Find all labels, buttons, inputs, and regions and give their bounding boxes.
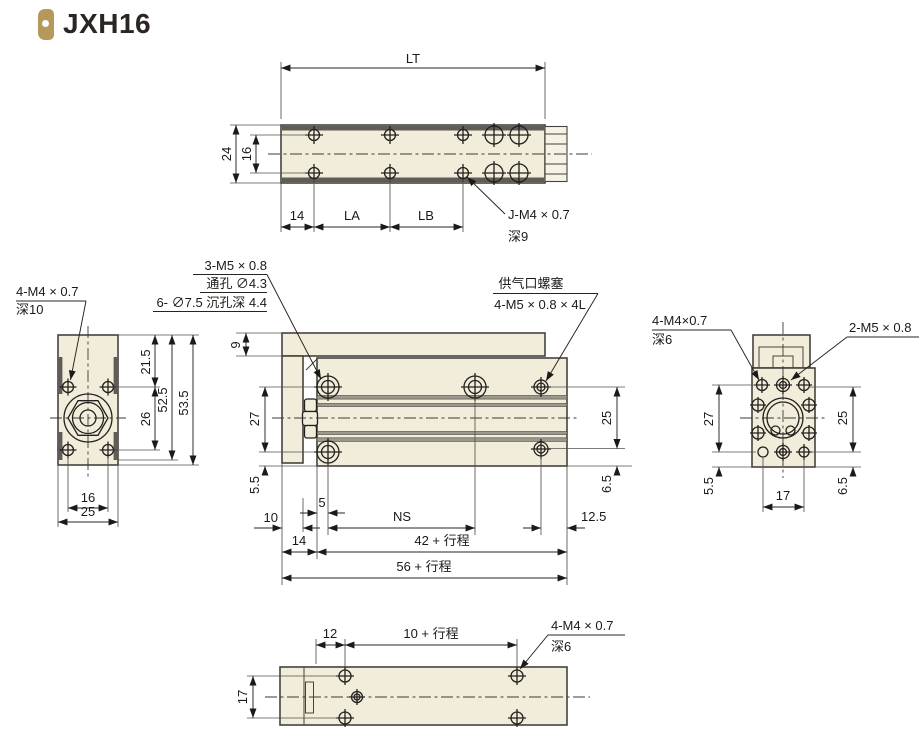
dim-17r: 17 bbox=[776, 488, 790, 503]
dim-26: 26 bbox=[138, 412, 153, 426]
dim-27r: 27 bbox=[701, 412, 716, 426]
dim-16: 16 bbox=[239, 147, 254, 161]
dim-24: 24 bbox=[219, 147, 234, 161]
right-side-view: 4-M4×0.7 深6 2-M5 × 0.8 27 5.5 25 6.5 17 bbox=[652, 313, 919, 512]
left-side-view: 4-M4 × 0.7 深10 21.5 26 52.5 53.5 16 25 bbox=[16, 284, 199, 527]
dim-6-5: 6.5 bbox=[599, 475, 614, 493]
note-4m4-depth: 深10 bbox=[16, 302, 43, 317]
note-port-plug: 供气口螺塞 bbox=[498, 276, 563, 291]
technical-drawing-canvas: LT 24 16 14 LA LB J-M4 × 0.7 深9 bbox=[0, 0, 921, 744]
dim-52-5: 52.5 bbox=[155, 387, 170, 412]
dim-10: 10 bbox=[264, 510, 278, 525]
dim-14: 14 bbox=[290, 208, 304, 223]
dim-42-stroke: 42 + 行程 bbox=[414, 533, 469, 548]
note-4m4-bottom: 4-M4 × 0.7 bbox=[551, 618, 614, 633]
dim-5: 5 bbox=[318, 495, 325, 510]
note-4m4-bottom-depth: 深6 bbox=[551, 639, 571, 654]
rod-nut bbox=[303, 399, 318, 438]
note-port-thread: 4-M5 × 0.8 × 4L bbox=[494, 297, 586, 312]
dim-5-5r: 5.5 bbox=[701, 477, 716, 495]
top-view: LT 24 16 14 LA LB J-M4 × 0.7 深9 bbox=[219, 51, 592, 244]
dim-12-5: 12.5 bbox=[581, 509, 606, 524]
dim-9: 9 bbox=[228, 341, 243, 348]
dim-10-stroke: 10 + 行程 bbox=[403, 626, 458, 641]
note-jm4: J-M4 × 0.7 bbox=[508, 207, 570, 222]
note-counterbore: 6- ∅7.5 沉孔深 4.4 bbox=[156, 295, 267, 310]
bottom-view: 12 10 + 行程 4-M4 × 0.7 深6 17 bbox=[235, 618, 625, 727]
dim-ns: NS bbox=[393, 509, 411, 524]
note-4m4: 4-M4 × 0.7 bbox=[16, 284, 79, 299]
note-2m5: 2-M5 × 0.8 bbox=[849, 320, 912, 335]
dim-lb: LB bbox=[418, 208, 434, 223]
dim-27: 27 bbox=[247, 412, 262, 426]
cylinder-body bbox=[317, 358, 567, 466]
note-3m5: 3-M5 × 0.8 bbox=[204, 258, 267, 273]
note-jm4-depth: 深9 bbox=[508, 229, 528, 244]
drawing-page: JXH16 bbox=[0, 0, 921, 744]
dim-56-stroke: 56 + 行程 bbox=[396, 559, 451, 574]
dim-lt: LT bbox=[406, 51, 420, 66]
dim-16b: 16 bbox=[81, 490, 95, 505]
dim-6-5r: 6.5 bbox=[835, 477, 850, 495]
dim-25r: 25 bbox=[835, 411, 850, 425]
dim-la: LA bbox=[344, 208, 360, 223]
dim-25: 25 bbox=[599, 411, 614, 425]
dim-25b: 25 bbox=[81, 504, 95, 519]
note-4m4-right-depth: 深6 bbox=[652, 332, 672, 347]
note-through-hole: 通孔 ∅4.3 bbox=[206, 276, 267, 291]
end-cap bbox=[282, 356, 303, 463]
note-4m4-right: 4-M4×0.7 bbox=[652, 313, 707, 328]
dim-17b: 17 bbox=[235, 690, 250, 704]
table-end bbox=[753, 335, 810, 368]
front-view: 3-M5 × 0.8 通孔 ∅4.3 6- ∅7.5 沉孔深 4.4 供气口螺塞… bbox=[153, 258, 632, 585]
dim-5-5: 5.5 bbox=[247, 476, 262, 494]
dim-21-5: 21.5 bbox=[138, 349, 153, 374]
dim-12: 12 bbox=[323, 626, 337, 641]
dim-53-5: 53.5 bbox=[176, 390, 191, 415]
slide-table bbox=[282, 333, 545, 356]
dim-14f: 14 bbox=[292, 533, 306, 548]
